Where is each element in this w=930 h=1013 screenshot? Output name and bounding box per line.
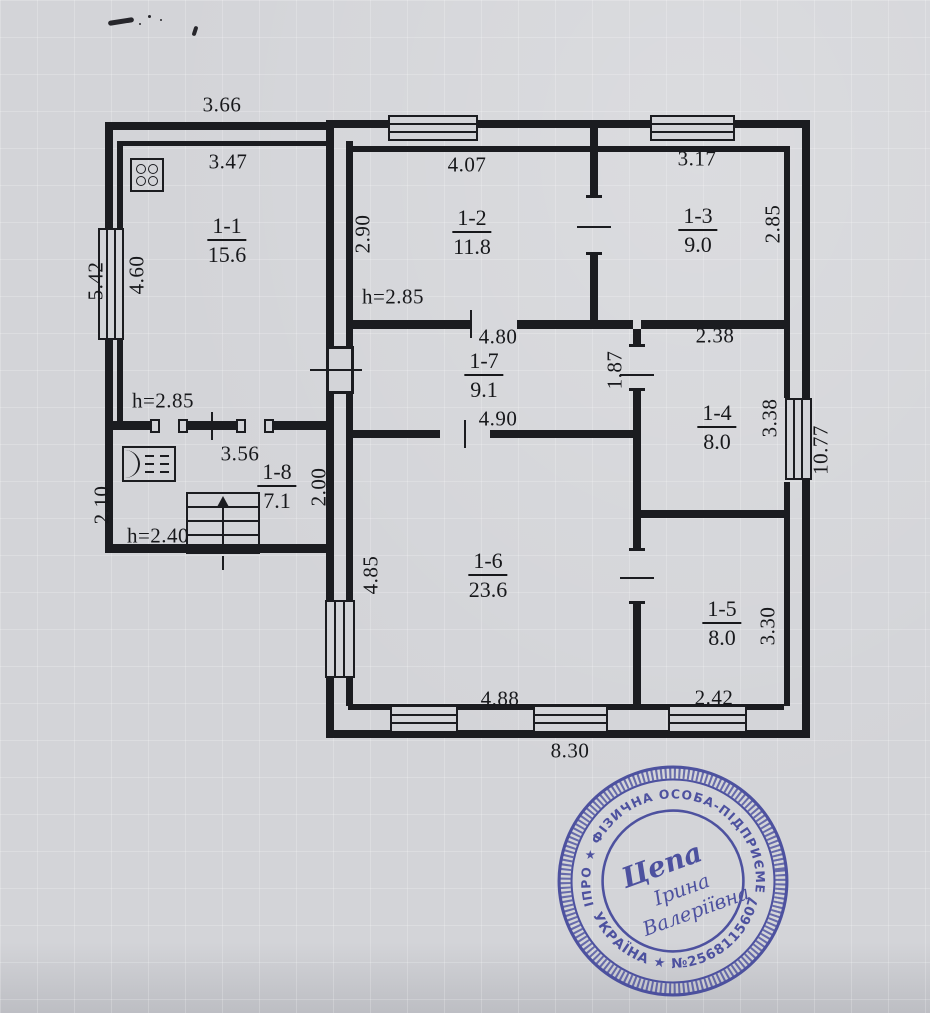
door-jamb — [150, 419, 160, 433]
door-jamb — [586, 252, 602, 255]
wall-left-wing-top — [105, 122, 334, 130]
door-jamb — [629, 601, 645, 604]
scanned-sheet: 3.663.474.073.172.902.855.424.60h=2.854.… — [0, 0, 930, 1013]
dimension-label: 3.38 — [758, 399, 783, 438]
door-jamb — [629, 388, 645, 391]
dimension-label: 2.10 — [90, 486, 115, 525]
door-jamb — [178, 419, 188, 433]
partition-12-13-a — [590, 128, 598, 198]
dimension-label: 8.30 — [551, 739, 590, 764]
room-number: 1-6 — [468, 549, 507, 576]
stairs-arrowhead — [217, 496, 229, 507]
dimension-label: 5.42 — [84, 262, 109, 301]
dimension-label: 4.80 — [479, 325, 518, 350]
dimension-label: 2.85 — [761, 205, 786, 244]
wall-tick — [470, 310, 472, 338]
room-number: 1-1 — [207, 214, 246, 241]
room-label-1-7: 1-79.1 — [464, 349, 503, 402]
room-area: 8.0 — [697, 430, 736, 454]
room-number: 1-2 — [452, 206, 491, 233]
partition-spine-b — [633, 391, 641, 548]
room-label-1-1: 1-115.6 — [207, 214, 246, 267]
partition-spine-a — [633, 329, 641, 344]
room-label-1-4: 1-48.0 — [697, 401, 736, 454]
wall-main-left-inner-b — [346, 394, 353, 600]
wall-tick — [222, 556, 224, 570]
notary-stamp: м. ДНІПРО ★ ФІЗИЧНА ОСОБА-ПІДПРИЄМЕЦЬ ★ … — [556, 764, 790, 998]
wall-tick — [464, 420, 466, 448]
dimension-label: h=2.40 — [127, 524, 189, 549]
window-symbol — [533, 705, 608, 733]
dimension-label: h=2.85 — [132, 389, 194, 414]
room-area: 15.6 — [207, 243, 246, 267]
room-label-1-2: 1-211.8 — [452, 206, 491, 259]
dimension-label: 4.90 — [479, 407, 518, 432]
dimension-label: h=2.85 — [362, 285, 424, 310]
room-number: 1-5 — [702, 597, 741, 624]
partition-12-17-a — [353, 320, 472, 329]
room-number: 1-8 — [257, 460, 296, 487]
ink-smudge — [192, 26, 199, 37]
ink-smudge — [160, 19, 162, 21]
room-label-1-6: 1-623.6 — [468, 549, 507, 602]
room-area: 8.0 — [702, 626, 741, 650]
dimension-label: 10.77 — [809, 425, 834, 475]
dimension-label: 2.42 — [695, 686, 734, 711]
stove-icon — [130, 158, 164, 192]
ink-smudge — [148, 15, 151, 18]
staircase-icon — [186, 492, 260, 554]
wall-main-top-inner — [348, 146, 784, 152]
wall-main-left-inner-c — [346, 678, 353, 706]
room-area: 11.8 — [452, 235, 491, 259]
window-symbol — [325, 600, 355, 678]
dimension-label: 4.07 — [448, 153, 487, 178]
dimension-label: 3.17 — [678, 147, 717, 172]
partition-17-16-a — [353, 430, 440, 438]
boiler-icon — [122, 446, 176, 482]
room-label-1-3: 1-39.0 — [678, 204, 717, 257]
partition-14-15 — [641, 510, 784, 518]
room-area: 9.0 — [678, 233, 717, 257]
dimension-label: 2.38 — [696, 324, 735, 349]
wall-main-right-inner-a — [784, 146, 790, 398]
dimension-label: 3.47 — [209, 150, 248, 175]
partition-12-13-b — [590, 255, 598, 320]
wall-tick — [211, 412, 213, 440]
window-symbol — [390, 705, 458, 733]
wall-left-wing-top-inner — [117, 141, 334, 146]
room-label-1-5: 1-58.0 — [702, 597, 741, 650]
room-area: 23.6 — [468, 578, 507, 602]
door-jamb — [586, 195, 602, 198]
room-area: 9.1 — [464, 378, 503, 402]
wall-tick — [620, 577, 654, 579]
room-number: 1-4 — [697, 401, 736, 428]
wall-kitchen-hall-b — [188, 421, 238, 430]
door-jamb — [629, 548, 645, 551]
dimension-label: 1.87 — [603, 351, 628, 390]
wall-tick — [577, 226, 611, 228]
window-symbol — [650, 115, 735, 141]
door-jamb — [264, 419, 274, 433]
partition-spine-c — [633, 604, 641, 706]
dimension-label: 3.66 — [203, 93, 242, 118]
door-jamb — [236, 419, 246, 433]
room-number: 1-3 — [678, 204, 717, 231]
boiler-arc — [125, 450, 140, 478]
dimension-label: 2.90 — [351, 215, 376, 254]
dimension-label: 3.56 — [221, 442, 260, 467]
dimension-label: 4.60 — [125, 256, 150, 295]
dimension-label: 2.00 — [307, 468, 332, 507]
room-area: 7.1 — [257, 489, 296, 513]
ink-smudge — [139, 23, 141, 25]
window-symbol — [388, 115, 478, 141]
ink-smudge — [108, 17, 134, 26]
wall-kitchen-hall-a — [113, 421, 152, 430]
partition-12-17-b — [517, 320, 633, 329]
stairs-up-arrow — [222, 501, 224, 551]
dimension-label: 4.88 — [481, 687, 520, 712]
wall-main-right-inner-b — [784, 482, 790, 706]
dimension-label: 4.85 — [359, 556, 384, 595]
room-number: 1-7 — [464, 349, 503, 376]
wall-tick — [310, 369, 362, 371]
door-jamb — [629, 344, 645, 347]
dimension-label: 3.30 — [756, 607, 781, 646]
wall-kitchen-hall-c — [274, 421, 334, 430]
room-label-1-8: 1-87.1 — [257, 460, 296, 513]
